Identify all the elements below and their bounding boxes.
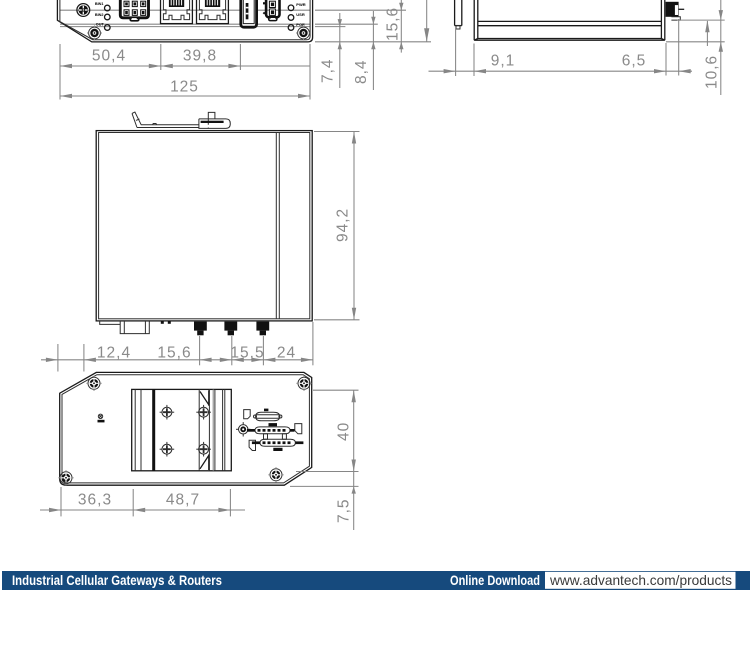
svg-text:OUT: OUT [96,23,105,27]
svg-text:40: 40 [336,422,353,441]
svg-text:Industrial Cellular Gateways &: Industrial Cellular Gateways & Routers [12,573,222,588]
svg-text:39,8: 39,8 [183,48,217,65]
svg-text:24: 24 [277,345,296,362]
svg-text:50,4: 50,4 [92,48,126,65]
svg-text:9,1: 9,1 [491,53,516,70]
svg-text:125: 125 [170,79,199,96]
svg-text:7,4: 7,4 [320,58,337,83]
svg-text:48,7: 48,7 [166,492,200,509]
svg-text:USR: USR [296,12,305,17]
svg-text:Online Download: Online Download [450,573,540,588]
svg-text:94,2: 94,2 [335,208,352,242]
svg-text:15,6: 15,6 [385,7,402,41]
svg-text:36,3: 36,3 [78,492,112,509]
svg-text:15,5: 15,5 [230,345,264,362]
svg-text:6,5: 6,5 [622,53,647,70]
svg-text:BIN2: BIN2 [95,13,104,17]
svg-text:www.advantech.com/products: www.advantech.com/products [549,572,732,588]
svg-text:8,4: 8,4 [353,59,370,84]
svg-text:15,6: 15,6 [157,345,191,362]
svg-text:12,4: 12,4 [97,345,131,362]
svg-text:BIN1: BIN1 [95,2,104,6]
svg-text:PWR: PWR [296,2,305,7]
svg-text:10,6: 10,6 [704,55,721,89]
svg-text:7,5: 7,5 [336,498,353,523]
